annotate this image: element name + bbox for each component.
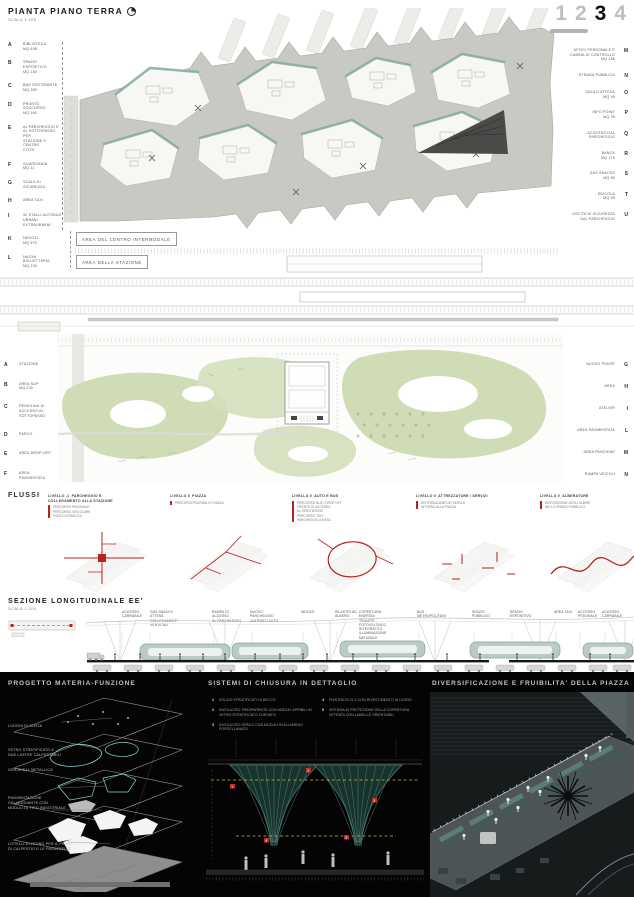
legend-label: USCITA DI SICUREZZA DAL PARCHEGGIO	[573, 212, 615, 221]
legend-letter: T	[619, 192, 628, 201]
legend-item: R BANCA MQ 170	[546, 151, 628, 160]
legend-item: M AREA PANCHINE	[558, 450, 628, 456]
legend-letter: I	[619, 406, 628, 412]
legend-letter: S	[619, 171, 628, 180]
flussi-diagram-servizi	[412, 524, 530, 592]
legend-letter: L	[619, 428, 628, 434]
longitudinal-section-drawing	[85, 608, 634, 672]
section-glass-volumes	[140, 641, 633, 660]
materia-label-1: LUOGHI DI SOSTA	[8, 724, 90, 729]
legend-label: PARCO	[19, 432, 33, 438]
flussi-caption-4: LIVELLO 0_ATTREZZATURE / SERVIZI DISTRIB…	[416, 494, 532, 509]
legend-letter: C	[8, 83, 19, 92]
truck-glyph	[87, 653, 104, 661]
piazza-rendering	[430, 692, 634, 897]
flussi-label: LIVELLO -1_PARCHEGGIO E COLLEGAMENTO ALL…	[48, 494, 164, 503]
legend-letter: R	[619, 151, 628, 160]
bullet-number: 5	[322, 708, 326, 718]
bullet-item: 1 SOLAIO STRATIFICATO A SECCO	[212, 698, 314, 703]
legend-label: NUOVO PONTE	[586, 362, 615, 368]
svg-text:1: 1	[231, 785, 233, 789]
legend-letter: I	[8, 213, 19, 227]
flussi-legend: DISPOSIZIONE DEGLI ALBERI NELLO SPAZIO P…	[540, 501, 634, 510]
legend-letter: P	[619, 110, 628, 119]
legend-item: N RAMPA VEICOLI	[558, 472, 628, 478]
legend-letter: B	[4, 382, 15, 391]
legend-park-left: A STAZIONE B AREA SUP MQ 235 C PENSILINA…	[4, 362, 56, 480]
legend-item: F GUARDIANIA MQ 11	[8, 162, 62, 171]
flussi-legend: PERCORSO BUS / DROP OFF FRONTE DI ACCESS…	[292, 501, 408, 523]
legend-letter: B	[8, 60, 19, 74]
bullet-item: 2 INVOLUCRO TRASPARENTE CON MODULI APRIB…	[212, 708, 314, 718]
flussi-diagram-parcheggio	[44, 524, 162, 592]
materia-label-3: GRIDSHELL METALLICO	[8, 768, 90, 773]
bullet-item: 5 SISTEMA DI PROTEZIONE DELLA COPERTURA …	[322, 708, 424, 718]
svg-text:3: 3	[373, 799, 375, 803]
legend-item: L AREA PAVIMENTATA	[558, 428, 628, 434]
svg-text:5: 5	[345, 836, 347, 840]
presentation-board: PIANTA PIANO TERRA SCALA 1:200 1 2 3 4	[0, 0, 634, 897]
flussi-label: LIVELLO 0_AUTO E BUS	[292, 494, 408, 499]
legend-label: BAR RISTORANTE MQ 280	[23, 83, 57, 92]
legend-letter: A	[8, 42, 19, 51]
legend-item: C BAR RISTORANTE MQ 280	[8, 83, 62, 92]
legend-item: E AREA DROP-OFF	[4, 451, 56, 457]
ground-floor-plan-drawing	[58, 8, 563, 236]
bullet-text: PIASTRA IN CLS CON RIVESTIMENTO IN LEGNO	[329, 698, 412, 703]
legend-label: SCALA DI SICUREZZA	[23, 180, 62, 189]
bullet-item: 4 PIASTRA IN CLS CON RIVESTIMENTO IN LEG…	[322, 698, 424, 703]
legend-item: I ATELIER	[558, 406, 628, 412]
page-number-3-active[interactable]: 3	[595, 2, 607, 26]
legend-item: C PENSILINA DI ACCESSO AL SOTTOPASSO	[4, 404, 56, 418]
section-key-plan	[8, 618, 78, 638]
bullet-number: 4	[322, 698, 326, 703]
bullet-text: INVOLUCRO TRASPARENTE CON MODULI APRIBIL…	[219, 708, 314, 718]
bullet-number: 1	[212, 698, 216, 703]
station-building-footprint	[277, 354, 337, 432]
legend-letter: F	[8, 162, 19, 171]
materia-panel-title: PROGETTO MATERIA-FUNZIONE	[8, 680, 136, 687]
materia-label-5: LISTELLI DI LEGNO PER IL PIANO DI CALPES…	[8, 842, 90, 852]
flussi-legend: DISTRIBUZIONE DEI SERVIZI INTORNO ALLA P…	[416, 501, 532, 510]
railway-tracks-drawing	[0, 246, 634, 334]
legend-item: S GAS SNACKS MQ 95	[546, 171, 628, 180]
flussi-diagram-piazza	[166, 524, 284, 592]
legend-ground-floor-left: A BIBLIOTECA MQ 638 B SPAZIO ESPOSITIVO …	[8, 42, 62, 269]
legend-ground-floor-right: M UFFICI PERSONALE E CABINA DI CONTROLLO…	[546, 48, 628, 221]
legend-park-right: G NUOVO PONTE H AREA I ATELIER L AREA PA…	[558, 362, 628, 478]
legend-item: F AREA PAVIMENTATA	[4, 471, 56, 480]
legend-letter: E	[4, 451, 15, 457]
bullet-text: SOLAIO STRATIFICATO A SECCO	[219, 698, 276, 703]
legend-label: NEGOZI MQ 970	[23, 236, 38, 245]
detail-people-silhouettes	[244, 850, 389, 870]
flussi-label: LIVELLO 0_ATTREZZATURE / SERVIZI	[416, 494, 532, 499]
legend-label: AREA PAVIMENTATA	[19, 471, 56, 480]
legend-label: SPAZIO ESPOSITIVO MQ 180	[23, 60, 62, 74]
legend-letter: C	[4, 404, 15, 418]
legend-letter: A	[4, 362, 15, 368]
page-index: 1 2 3 4	[555, 2, 626, 26]
legend-label: EDICOLA MQ 95	[598, 192, 615, 201]
legend-label: AREA PANCHINE	[584, 450, 616, 456]
flussi-diagram-alberature	[536, 524, 634, 592]
svg-text:4: 4	[265, 839, 267, 843]
materia-label-2: VETRO STRATIFICATO A DUE LASTRE CALPESTA…	[8, 748, 90, 758]
legend-label: INFO POINT MQ 95	[592, 110, 615, 119]
legend-item: G NUOVO PONTE	[558, 362, 628, 368]
legend-label: AREA TAXI	[23, 198, 43, 204]
legend-label: RAMPA VEICOLI	[585, 472, 615, 478]
legend-label: GAS SNACKS MQ 95	[590, 171, 615, 180]
legend-letter: K	[8, 236, 19, 245]
chiusura-bullets-right: 4 PIASTRA IN CLS CON RIVESTIMENTO IN LEG…	[322, 698, 424, 718]
area-center-box: AREA DEL CENTRO INTERMODALE	[76, 232, 177, 246]
legend-label: BIBLIOTECA MQ 638	[23, 42, 46, 51]
legend-letter: F	[4, 471, 15, 480]
legend-item: H AREA	[558, 384, 628, 390]
legend-letter: G	[619, 362, 628, 368]
flussi-legend: PERCORSI PEDONALI E PIAZZA	[170, 501, 286, 505]
flussi-heading: FLUSSI	[8, 492, 40, 499]
flussi-caption-1: LIVELLO -1_PARCHEGGIO E COLLEGAMENTO ALL…	[48, 494, 164, 518]
piazza-panel-title: DIVERSIFICAZIONE E FRUIBILITA' DELLA PIA…	[432, 680, 630, 687]
legend-item: E AL PARCHEGGIO E AL SOTTOPASSO PER STAZ…	[8, 125, 62, 153]
legend-item: B SPAZIO ESPOSITIVO MQ 180	[8, 60, 62, 74]
materia-label-4: PAVIMENTAZIONE GALLEGGIANTE CON MODULI D…	[8, 796, 90, 811]
bullet-item: 3 INVOLUCRO OPACO CON MODULI IN ALLUMINI…	[212, 723, 314, 733]
legend-letter: Q	[619, 131, 628, 140]
legend-item: G SCALA DI SICUREZZA	[8, 180, 62, 189]
legend-label: PENSILINA DI ACCESSO AL SOTTOPASSO	[19, 404, 45, 418]
chiusura-panel-title: SISTEMI DI CHIUSURA IN DETTAGLIO	[208, 680, 357, 687]
svg-text:2: 2	[307, 769, 309, 773]
legend-item: I 32 STALLI AUTOBUS URBANI EXTRAURBANI	[8, 213, 62, 227]
legend-letter: U	[619, 212, 628, 221]
park-site-plan-drawing	[58, 334, 563, 482]
legend-letter: E	[8, 125, 19, 153]
bullet-number: 2	[212, 708, 216, 718]
legend-item: P INFO POINT MQ 95	[546, 110, 628, 119]
underground-parking-cars	[93, 665, 631, 672]
legend-letter: H	[619, 384, 628, 390]
legend-label: AL PARCHEGGIO E AL SOTTOPASSO PER STAZIO…	[23, 125, 62, 153]
legend-label: AREA	[604, 384, 615, 390]
legend-label: 32 STALLI AUTOBUS URBANI EXTRAURBANI	[23, 213, 62, 227]
legend-letter: N	[619, 73, 628, 79]
legend-item: A BIBLIOTECA MQ 638	[8, 42, 62, 51]
flussi-caption-3: LIVELLO 0_AUTO E BUS PERCORSO BUS / DROP…	[292, 494, 408, 522]
bullet-text: SISTEMA DI PROTEZIONE DELLA COPERTURA VE…	[329, 708, 424, 718]
legend-label: AREA SUP MQ 235	[19, 382, 39, 391]
legend-label: AREA PAVIMENTATA	[577, 428, 615, 434]
page-number-2[interactable]: 2	[575, 2, 587, 26]
legend-item: D PRONTO SOCCORSO MQ 180	[8, 102, 62, 116]
legend-label: ACCESSO DAL PARCHEGGIO	[587, 131, 615, 140]
closure-detail-drawing: 1 2 3 4 5	[206, 740, 424, 894]
legend-letter: M	[619, 48, 628, 62]
ground-line	[87, 660, 489, 662]
legend-item: Q ACCESSO DAL PARCHEGGIO	[546, 131, 628, 140]
page-number-4[interactable]: 4	[614, 2, 626, 26]
legend-item: M UFFICI PERSONALE E CABINA DI CONTROLLO…	[546, 48, 628, 62]
flussi-caption-5: LIVELLO 0_ALBERATURE DISPOSIZIONE DEGLI …	[540, 494, 634, 509]
section-title: SEZIONE LONGITUDINALE EE'	[8, 598, 144, 605]
flussi-label: LIVELLO 0_PIAZZA	[170, 494, 286, 499]
legend-letter: M	[619, 450, 628, 456]
legend-letter: O	[619, 90, 628, 99]
flussi-caption-2: LIVELLO 0_PIAZZA PERCORSI PEDONALI E PIA…	[170, 494, 286, 505]
legend-item: U USCITA DI SICUREZZA DAL PARCHEGGIO	[546, 212, 628, 221]
legend-item: B AREA SUP MQ 235	[4, 382, 56, 391]
legend-letter: D	[8, 102, 19, 116]
legend-item: A STAZIONE	[4, 362, 56, 368]
legend-letter: N	[619, 472, 628, 478]
legend-label: ATELIER	[599, 406, 615, 412]
legend-letter: D	[4, 432, 15, 438]
bullet-number: 3	[212, 723, 216, 733]
bottom-dark-band: PROGETTO MATERIA-FUNZIONE SISTEMI DI CHI…	[0, 672, 634, 897]
legend-label: STAZIONE	[19, 362, 38, 368]
legend-label: BANCA MQ 170	[601, 151, 615, 160]
legend-item: H AREA TAXI	[8, 198, 62, 204]
legend-item: D PARCO	[4, 432, 56, 438]
flussi-legend: PERCORSO PEDONALE PERCORSO VEICOLARE PUN…	[48, 505, 164, 518]
legend-label: SALA D'ATTESA MQ 95	[585, 90, 615, 99]
legend-item: N STRADA PUBBLICA	[546, 73, 628, 79]
legend-label: STRADA PUBBLICA	[579, 73, 615, 79]
legend-separator-line	[62, 42, 63, 230]
legend-item: T EDICOLA MQ 95	[546, 192, 628, 201]
chiusura-bullets-left: 1 SOLAIO STRATIFICATO A SECCO 2 INVOLUCR…	[212, 698, 314, 732]
bullet-text: INVOLUCRO OPACO CON MODULI IN ALLUMINIO …	[219, 723, 314, 733]
legend-label: AREA DROP-OFF	[19, 451, 51, 457]
legend-item: O SALA D'ATTESA MQ 95	[546, 90, 628, 99]
legend-label: GUARDIANIA MQ 11	[23, 162, 47, 171]
legend-letter: H	[8, 198, 19, 204]
legend-label: UFFICI PERSONALE E CABINA DI CONTROLLO M…	[570, 48, 615, 62]
legend-letter: G	[8, 180, 19, 189]
flussi-label: LIVELLO 0_ALBERATURE	[540, 494, 634, 499]
flussi-diagram-auto-bus	[288, 524, 406, 592]
exploded-axonometric-drawing	[2, 692, 202, 892]
legend-label: PRONTO SOCCORSO MQ 180	[23, 102, 62, 116]
legend-item: K NEGOZI MQ 970	[8, 236, 62, 245]
